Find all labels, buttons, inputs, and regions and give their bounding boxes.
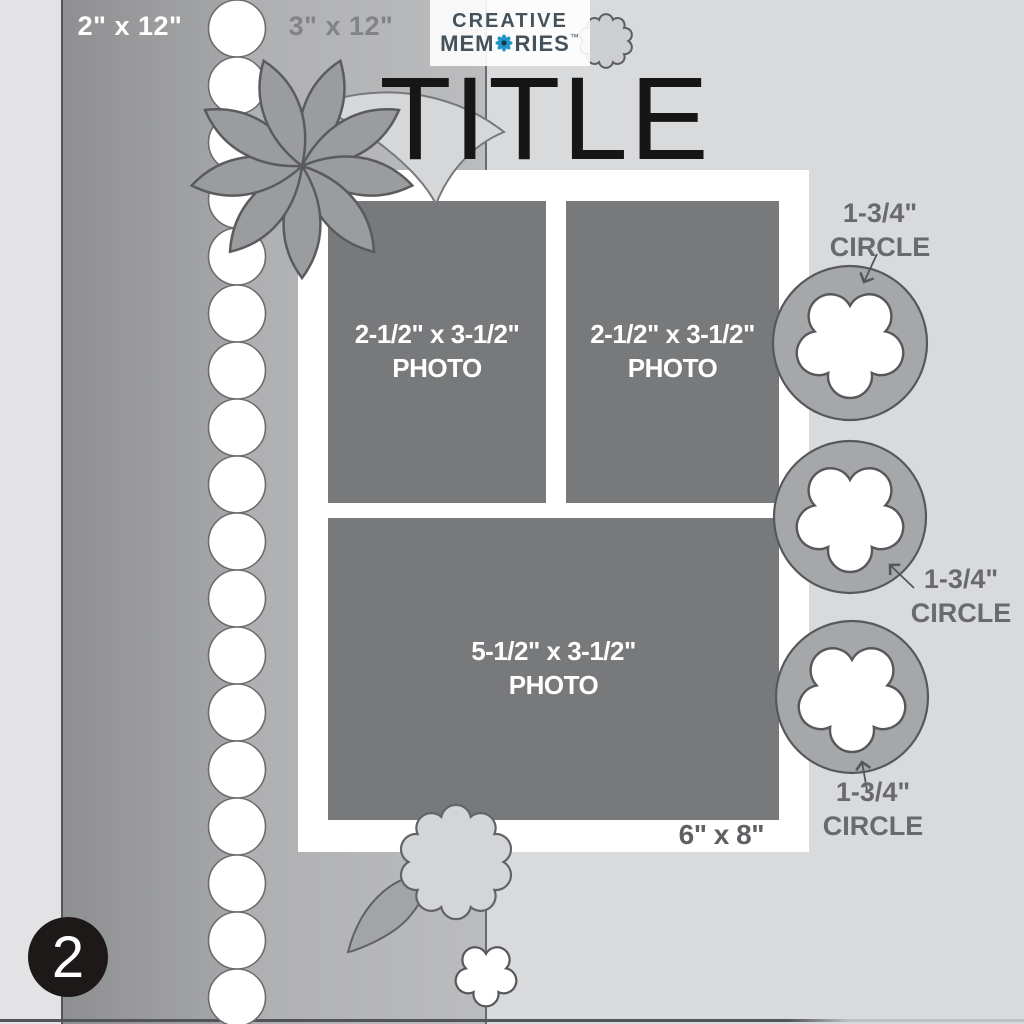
punch-1-size: 1-3/4" [798, 196, 962, 230]
photo-1-size: 2-1/2" x 3-1/2" [355, 318, 520, 352]
annotation-arrows [862, 254, 914, 790]
page-bottom-edge-line [0, 1019, 1024, 1022]
photo-2-caption: PHOTO [628, 352, 717, 386]
page-number: 2 [52, 924, 84, 991]
flower-punch-icon [797, 294, 903, 398]
brand-line2-pre: MEM [440, 32, 494, 56]
brand-line2-post: RIES [514, 32, 569, 56]
brand-flower-icon [494, 33, 514, 58]
photo-2-size: 2-1/2" x 3-1/2" [590, 318, 755, 352]
label-paper-3x12: 3" x 12" [266, 11, 416, 42]
left-paper-edge-line [61, 0, 63, 1024]
brand-line1: CREATIVE [452, 10, 568, 32]
label-punch-circle-1: 1-3/4" CIRCLE [798, 196, 962, 264]
photo-placeholder-2: 2-1/2" x 3-1/2" PHOTO [566, 201, 779, 503]
brand-logo: CREATIVE MEMRIES™ [430, 0, 590, 66]
photo-placeholder-3: 5-1/2" x 3-1/2" PHOTO [328, 518, 779, 820]
punch-2-shape: CIRCLE [876, 596, 1024, 630]
punch-2-size: 1-3/4" [876, 562, 1024, 596]
page-number-badge: 2 [28, 917, 108, 997]
photo-placeholder-1: 2-1/2" x 3-1/2" PHOTO [328, 201, 546, 503]
label-mat-size: 6" x 8" [600, 819, 764, 851]
brand-line2: MEMRIES™ [440, 32, 580, 56]
page-left-margin [0, 0, 62, 1024]
trademark-symbol: ™ [570, 25, 580, 49]
punch-1-shape: CIRCLE [798, 230, 962, 264]
label-punch-circle-2: 1-3/4" CIRCLE [876, 562, 1024, 630]
sketch-page: 2-1/2" x 3-1/2" PHOTO 2-1/2" x 3-1/2" PH… [0, 0, 1024, 1024]
label-paper-2x12: 2" x 12" [55, 11, 205, 42]
photo-3-size: 5-1/2" x 3-1/2" [471, 635, 636, 669]
paper-strip-2x12 [62, 0, 237, 1024]
label-punch-circle-3: 1-3/4" CIRCLE [791, 775, 955, 843]
photo-3-caption: PHOTO [509, 669, 598, 703]
flower-punch-icon [799, 648, 905, 752]
punch-3-size: 1-3/4" [791, 775, 955, 809]
title-placeholder: TITLE [295, 60, 795, 178]
punch-3-shape: CIRCLE [791, 809, 955, 843]
photo-1-caption: PHOTO [392, 352, 481, 386]
flower-punch-icon [797, 468, 903, 572]
